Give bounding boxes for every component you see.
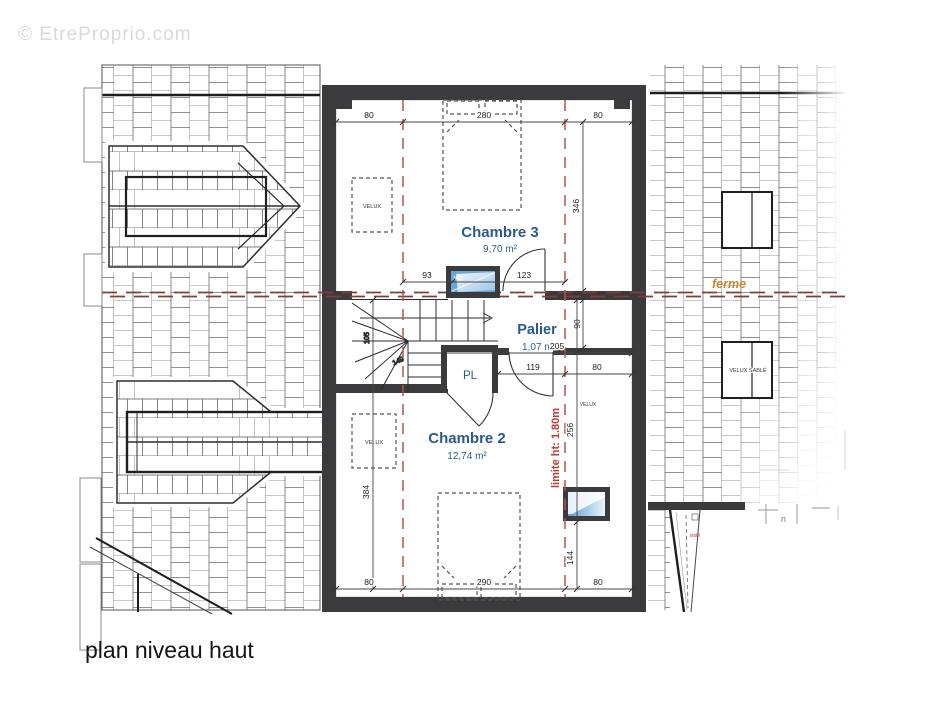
- wall-bottom: [322, 597, 646, 612]
- dim-80-palier: 80: [592, 362, 602, 372]
- stair-dim-105: 105: [364, 332, 371, 344]
- dim-93: 93: [422, 270, 432, 280]
- building-walls: [322, 85, 646, 612]
- roof-window-right: [563, 487, 610, 521]
- isole-label: isolé: [690, 533, 701, 539]
- dim-bottom-right: 80: [593, 577, 603, 587]
- left-roof-gutter-stubs: [80, 88, 102, 650]
- dim-top-left: 80: [364, 110, 374, 120]
- dim-top-mid: 280: [477, 110, 491, 120]
- limite-label: limite ht: 1.80m: [550, 408, 562, 488]
- chambre2-name: Chambre 2: [428, 430, 506, 447]
- velux-box-upper: [722, 192, 772, 248]
- dim-top-right: 80: [593, 110, 603, 120]
- dim-144: 144: [565, 551, 575, 565]
- n-mark: n: [781, 514, 786, 524]
- dim-119: 119: [526, 362, 540, 372]
- chambre3-name: Chambre 3: [461, 224, 539, 241]
- chambre3-area: 9,70 m²: [483, 244, 518, 255]
- right-roof: VELUX SABLÉ isolé n: [648, 65, 850, 612]
- dim-384: 384: [361, 485, 371, 499]
- right-roof-lower-strip: [648, 505, 670, 610]
- dim-bottom-left: 80: [364, 577, 374, 587]
- plan-drawing: VELUX SABLÉ isolé n: [0, 0, 936, 720]
- velux-box-lower: VELUX SABLÉ: [722, 342, 772, 398]
- palier-name: Palier: [517, 322, 557, 338]
- floorplan-screenshot: VELUX SABLÉ isolé n: [0, 0, 936, 720]
- watermark: © EtreProprio.com: [18, 24, 192, 45]
- dim-123: 123: [517, 270, 531, 280]
- velux-label-c2: VELUX: [365, 440, 383, 446]
- dim-346: 346: [571, 199, 581, 213]
- stair-bottom-wall: [336, 384, 444, 393]
- velux-sable-label: VELUX SABLÉ: [729, 367, 767, 374]
- chambre2-area: 12,74 m²: [447, 451, 487, 462]
- dim-256: 256: [565, 423, 575, 437]
- closet-label: PL: [463, 370, 478, 382]
- ferme-label: ferme: [712, 277, 746, 291]
- wall-top: [322, 85, 646, 100]
- velux-label-right: VELUX: [580, 402, 597, 408]
- wall-right: [632, 85, 646, 612]
- dim-bottom-mid: 290: [477, 577, 491, 587]
- dim-205: 205: [550, 341, 564, 351]
- velux-label-c3: VELUX: [363, 204, 381, 210]
- left-roof: [80, 65, 325, 650]
- wall-left: [322, 85, 336, 612]
- page-title: plan niveau haut: [85, 637, 254, 663]
